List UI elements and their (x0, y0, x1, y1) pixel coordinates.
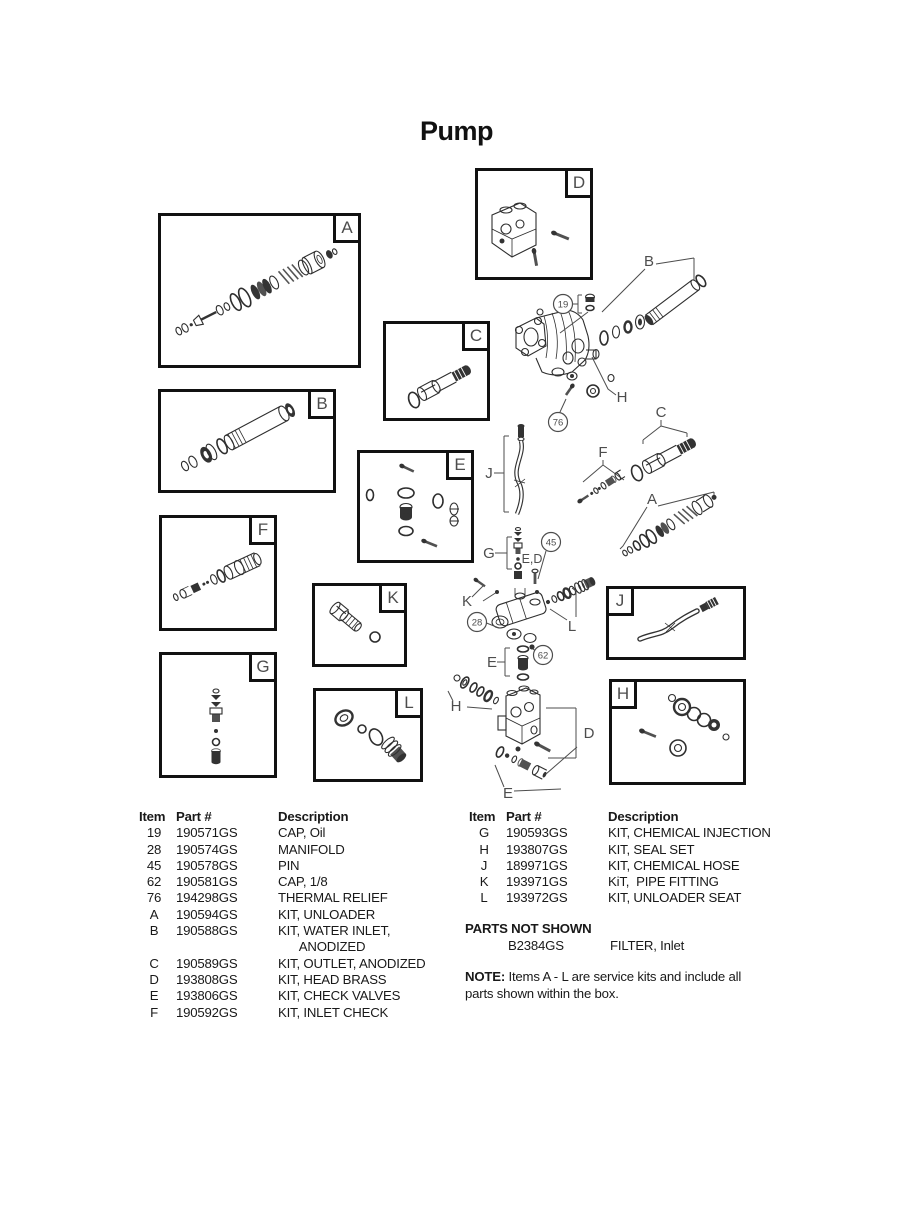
kit-box-l-label: L (395, 691, 420, 718)
ref-ed-stud: E,D (522, 552, 543, 584)
cell-part: 190571GS (176, 825, 278, 841)
cell-item: L (469, 890, 499, 906)
water-inlet-kit-parts (178, 401, 297, 475)
parts-row: A190594GSKIT, UNLOADER (139, 907, 425, 923)
cell-item: 28 (139, 842, 169, 858)
cell-part: 190581GS (176, 874, 278, 890)
cell-item: C (139, 956, 169, 972)
kit-box-f: F (159, 515, 277, 631)
parts-row: B190588GSKIT, WATER INLET, ANODIZED (139, 923, 425, 956)
kit-box-f-label: F (249, 518, 274, 545)
kit-box-g: G (159, 652, 277, 778)
parts-row: E193806GSKIT, CHECK VALVES (139, 988, 425, 1004)
ref-k-pipe-fitting: K (462, 577, 499, 610)
parts-row: L193972GSKIT, UNLOADER SEAT (469, 890, 771, 906)
parts-row: H193807GSKIT, SEAL SET (469, 842, 771, 858)
ref-label-b: B (644, 253, 654, 270)
parts-row: 76194298GSTHERMAL RELIEF (139, 890, 425, 906)
cell-item: F (139, 1005, 169, 1021)
ref-j-chemical-hose: J (485, 424, 525, 514)
cell-part: 190574GS (176, 842, 278, 858)
cell-part: 193971GS (506, 874, 608, 890)
kit-box-b-label: B (308, 392, 333, 419)
ref-label-e-low: E (503, 785, 513, 802)
ref-label-g: G (483, 545, 495, 562)
cell-part: 190593GS (506, 825, 608, 841)
cell-desc: KIT, INLET CHECK (278, 1005, 388, 1021)
note-label: NOTE: (465, 969, 505, 984)
callout-19: 19 (554, 294, 595, 333)
col-header-item: Item (139, 809, 169, 825)
parts-table-right-header: Item Part # Description (469, 809, 771, 825)
parts-not-shown-row: B2384GS FILTER, Inlet (465, 938, 684, 955)
pump-head-drawing (498, 686, 540, 752)
ref-c-outlet: C (630, 404, 699, 482)
cell-part: 190592GS (176, 1005, 278, 1021)
ref-l-unloader-seat: L (544, 575, 597, 635)
cell-item: D (139, 972, 169, 988)
cell-desc: KiT, PIPE FITTING (608, 874, 719, 890)
kit-box-a-label: A (333, 216, 358, 243)
ref-f-inlet-check: F (575, 444, 624, 506)
ref-label-e-mid: E (487, 654, 497, 671)
parts-row: 19190571GSCAP, Oil (139, 825, 425, 841)
callout-28-number: 28 (472, 618, 483, 629)
parts-row: D193808GSKIT, HEAD BRASS (139, 972, 425, 988)
ref-label-d: D (584, 725, 595, 742)
col-header-item: Item (469, 809, 499, 825)
col-header-desc: Description (608, 809, 678, 825)
cell-item: 45 (139, 858, 169, 874)
pump-crankcase-drawing (516, 309, 600, 380)
cell-item: 19 (139, 825, 169, 841)
inlet-check-kit-parts (171, 551, 263, 605)
ref-label-l: L (568, 618, 576, 635)
kit-box-k-label: K (379, 586, 404, 613)
cell-desc: KIT, SEAL SET (608, 842, 694, 858)
kit-box-g-label: G (249, 655, 274, 682)
ref-label-a: A (647, 491, 657, 508)
cell-part: 194298GS (176, 890, 278, 906)
cell-desc: FILTER, Inlet (610, 938, 684, 955)
ref-d-head: D (533, 708, 594, 758)
note-text: Items A - L are service kits and include… (465, 969, 741, 1001)
pipe-fitting-kit-parts (328, 601, 380, 642)
manual-page: Pump (0, 0, 906, 1208)
chemical-injection-kit-parts (210, 689, 222, 764)
kit-box-l: L (313, 688, 423, 782)
parts-row: F190592GSKIT, INLET CHECK (139, 1005, 425, 1021)
ref-label-h-low: H (451, 698, 462, 715)
parts-not-shown: PARTS NOT SHOWN B2384GS FILTER, Inlet (465, 921, 684, 954)
parts-row: 62190581GSCAP, 1/8 (139, 874, 425, 890)
col-header-desc: Description (278, 809, 348, 825)
unloader-kit-parts (172, 242, 341, 341)
cell-item: K (469, 874, 499, 890)
col-header-part: Part # (176, 809, 278, 825)
col-header-part: Part # (506, 809, 608, 825)
cell-desc: CAP, Oil (278, 825, 325, 841)
cell-item: 76 (139, 890, 169, 906)
cell-desc: KIT, WATER INLET, ANODIZED (278, 923, 390, 956)
cell-desc: PIN (278, 858, 299, 874)
ref-label-ed: E,D (522, 552, 543, 566)
cell-item: B (139, 923, 169, 956)
cell-item: A (139, 907, 169, 923)
cell-part: 190594GS (176, 907, 278, 923)
parts-row: C190589GSKIT, OUTLET, ANODIZED (139, 956, 425, 972)
tube-b-drawing (643, 274, 708, 327)
kit-box-a: A (158, 213, 361, 368)
parts-table-left: Item Part # Description 19190571GSCAP, O… (139, 809, 425, 1021)
callout-62: 62 (530, 645, 553, 665)
parts-table-left-header: Item Part # Description (139, 809, 425, 825)
parts-row: 28190574GSMANIFOLD (139, 842, 425, 858)
ref-h-top-seals: H (587, 357, 627, 406)
callout-19-number: 19 (558, 300, 569, 311)
cell-desc: MANIFOLD (278, 842, 345, 858)
cell-part: 189971GS (506, 858, 608, 874)
ref-e-low-check-valve: E (495, 746, 577, 802)
cell-part: 190578GS (176, 858, 278, 874)
kit-box-k: K (312, 583, 407, 667)
callout-28: 28 (468, 613, 500, 632)
callout-76: 76 (549, 383, 576, 432)
cell-desc: KIT, UNLOADER SEAT (608, 890, 741, 906)
callout-62-number: 62 (538, 651, 549, 662)
cell-part: 193807GS (506, 842, 608, 858)
cell-part: 193972GS (506, 890, 608, 906)
parts-row: 45190578GSPIN (139, 858, 425, 874)
cell-part: B2384GS (508, 938, 610, 955)
cell-item: J (469, 858, 499, 874)
service-kit-note: NOTE: Items A - L are service kits and i… (465, 969, 767, 1002)
cell-desc: KIT, HEAD BRASS (278, 972, 386, 988)
cell-desc: KIT, CHEMICAL HOSE (608, 858, 739, 874)
ref-label-c: C (656, 404, 667, 421)
cell-part: 193808GS (176, 972, 278, 988)
ref-a-unloader: A (619, 490, 720, 561)
cell-desc: KIT, OUTLET, ANODIZED (278, 956, 425, 972)
parts-row: G190593GSKIT, CHEMICAL INJECTION (469, 825, 771, 841)
cell-part: 193806GS (176, 988, 278, 1004)
callout-45-number: 45 (546, 538, 557, 549)
ref-label-f: F (598, 444, 607, 461)
cell-item: 62 (139, 874, 169, 890)
kit-box-b: B (158, 389, 336, 493)
callout-76-number: 76 (553, 418, 564, 429)
cell-desc: KIT, CHEMICAL INJECTION (608, 825, 771, 841)
pump-manifold-drawing (492, 588, 547, 650)
parts-row: K193971GSKiT, PIPE FITTING (469, 874, 771, 890)
cell-item: H (469, 842, 499, 858)
ref-label-h-top: H (617, 389, 628, 406)
ref-b-water-inlet: B (600, 253, 708, 345)
cell-item: G (469, 825, 499, 841)
cell-desc: KIT, CHECK VALVES (278, 988, 400, 1004)
kit-box-a-drawing (161, 216, 358, 365)
cell-item: E (139, 988, 169, 1004)
cell-desc: KIT, UNLOADER (278, 907, 375, 923)
assembly-diagram: 19 B (440, 150, 770, 820)
cell-desc: CAP, 1/8 (278, 874, 327, 890)
ref-label-k: K (462, 593, 472, 610)
parts-table-right: Item Part # Description G190593GSKIT, CH… (469, 809, 771, 907)
ref-h-low-seals: H (448, 671, 501, 715)
cell-desc: THERMAL RELIEF (278, 890, 388, 906)
cell-part: 190589GS (176, 956, 278, 972)
page-title: Pump (420, 116, 493, 147)
ref-label-j: J (485, 465, 493, 482)
tube-c-drawing (641, 435, 699, 475)
ref-g-chemical-injection: G (483, 528, 522, 580)
parts-row: J189971GSKIT, CHEMICAL HOSE (469, 858, 771, 874)
cell-part: 190588GS (176, 923, 278, 956)
ref-e-mid-check-valve: E (487, 646, 529, 680)
parts-not-shown-title: PARTS NOT SHOWN (465, 921, 684, 938)
